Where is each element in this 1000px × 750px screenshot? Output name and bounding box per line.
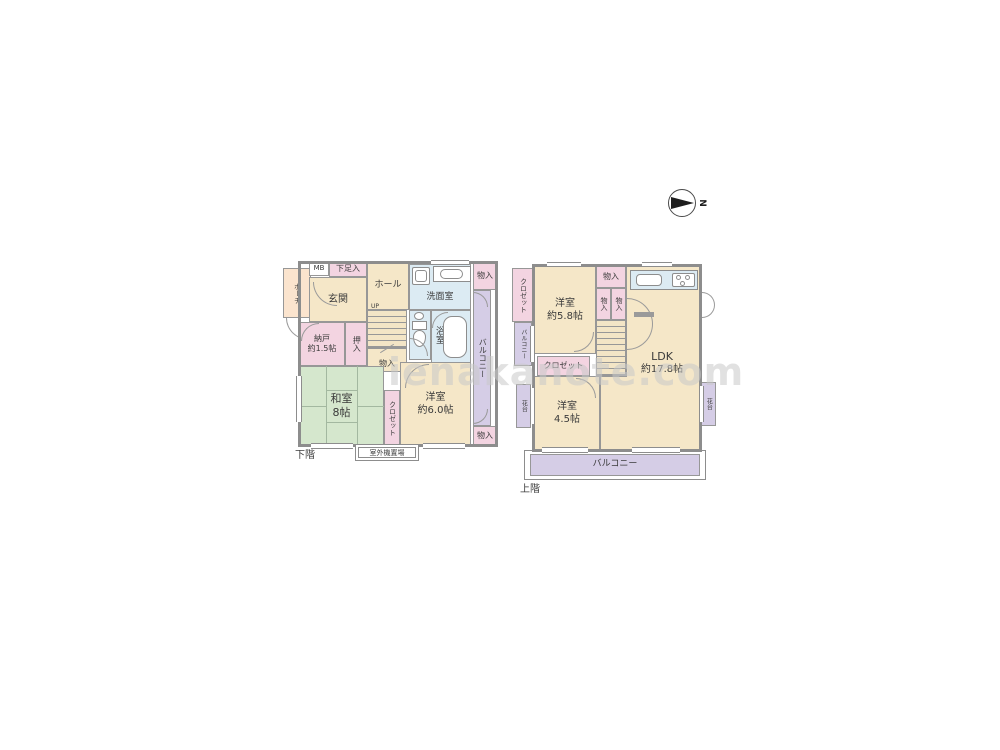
compass-icon: N [668,189,708,217]
floor2-storage-top: 物入 [596,266,626,288]
tatami-line [299,406,326,407]
floor1-shoe-storage: 下足入 [329,262,367,277]
kitchen-sink-icon [636,274,662,286]
floor2-plan: クロゼット バルコニー 洋室 約5.8帖 物入 物入 物入 LDK 約17.8帖 [512,258,722,498]
floor1-meter-box: MB [309,262,329,276]
washitsu-size-label: 8帖 [333,406,351,420]
floor2-balcony-bottom: バルコニー [530,454,700,476]
balcony-label: バルコニー [593,459,638,471]
burner-icon [680,281,685,286]
mb-label: MB [314,264,325,273]
floor1-label: 下階 [295,450,315,463]
outdoor-unit-box-inner: 室外機置場 [358,447,416,458]
window [699,386,704,422]
porch-label: ポーチ [292,283,301,304]
closet-label: クロゼット [544,361,584,371]
floor2-flower-stand-left: 花台 [516,384,531,428]
hall-label: ホール [374,280,401,292]
shoe-storage-label: 下足入 [336,264,360,274]
washing-machine-drum-icon [415,270,427,282]
floor2-storage-b: 物入 [611,288,626,320]
bedroom1-label: 洋室 [555,297,575,310]
storage-label: 物入 [477,431,493,441]
vanity-sink-icon [440,269,463,279]
ldk-labels: LDK 約17.8帖 [630,350,694,376]
floor1-balcony: バルコニー [473,290,491,426]
washroom-label: 洗面室 [426,292,453,304]
floor1-stairs [367,310,407,348]
bedroom-size-label: 約6.0帖 [418,404,454,417]
bedroom-label: 洋室 [426,391,446,404]
tatami-line [326,390,358,391]
window [530,326,535,362]
window [632,447,680,453]
storage-label: 物入 [603,272,619,282]
flower-stand-label: 花台 [705,398,713,410]
window [542,447,588,453]
balcony-label: バルコニー [477,338,487,378]
floor1-storage-top: 物入 [473,262,497,290]
tatami-line [326,422,358,423]
compass-north-label: N [697,199,707,207]
floor2-closet-left: クロゼット [512,268,534,322]
burner-icon [676,275,681,280]
window [311,443,353,449]
storage-label: 物入 [599,297,608,311]
closet-label: クロゼット [518,278,527,313]
floor1-plan: ポーチ MB 下足入 玄関 ホール UP 物入 洗面室 [283,260,503,470]
tatami-line [357,406,384,407]
window [642,262,672,267]
washitsu-label: 和室 [331,392,353,406]
bedroom2-label: 洋室 [557,400,577,413]
storage-label: 物入 [477,271,493,281]
floor2-stairs [596,320,626,376]
outdoor-unit-label: 室外機置場 [370,448,405,458]
floorplan-canvas: N ienakanote.com ポーチ MB 下足入 玄関 ホール UP [0,0,1000,750]
balcony-label: バルコニー [519,329,527,359]
bedroom1-size-label: 約5.8帖 [547,310,583,323]
floor1-storage-bottom: 物入 [473,426,497,446]
ldk-label: LDK [630,350,694,364]
floor2-storage-a: 物入 [596,288,611,320]
flower-stand-label: 花台 [520,400,528,412]
floor2-closet-mid: クロゼット [537,356,590,376]
window [530,388,535,424]
storage-label: 物入 [614,297,623,311]
ldk-size-label: 約17.8帖 [630,364,694,377]
floor2-label: 上階 [520,484,540,497]
toilet-tank-icon [412,321,427,330]
window [547,262,581,267]
closet-label: クロゼット [387,401,396,436]
storeroom-size-label: 約1.5帖 [308,344,337,354]
bedroom2-size-label: 4.5帖 [554,413,580,426]
floor1-room-porch: ポーチ [283,268,311,318]
oshiire-label: 押入 [351,336,361,352]
window [431,260,469,265]
floor1-room-oshiire: 押入 [345,322,367,366]
compass-needle-icon [671,197,694,209]
window [296,376,302,422]
door-arc [702,292,715,318]
window [423,443,465,449]
tatami-line [326,366,327,446]
burner-icon [685,275,690,280]
floor1-closet: クロゼット [384,390,400,446]
toilet-sink-icon [414,312,424,320]
floor2-room-ldk-annex [600,376,627,450]
